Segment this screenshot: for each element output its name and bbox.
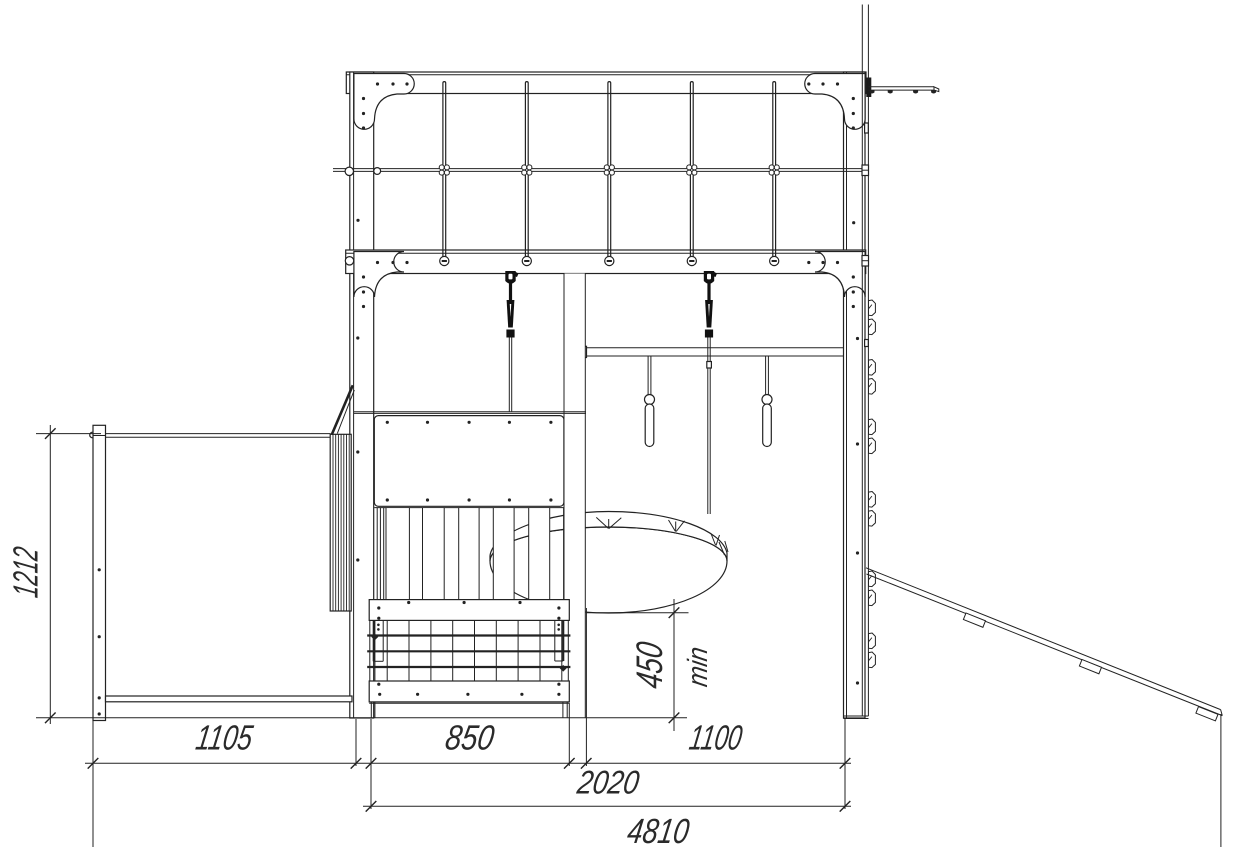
svg-text:450: 450 [628,639,670,691]
svg-text:1212: 1212 [7,544,46,600]
svg-text:4810: 4810 [625,812,692,847]
svg-text:1105: 1105 [193,719,255,758]
svg-text:1100: 1100 [687,719,745,758]
svg-text:850: 850 [443,719,497,758]
svg-text:2020: 2020 [574,765,642,802]
svg-text:min: min [681,645,713,689]
